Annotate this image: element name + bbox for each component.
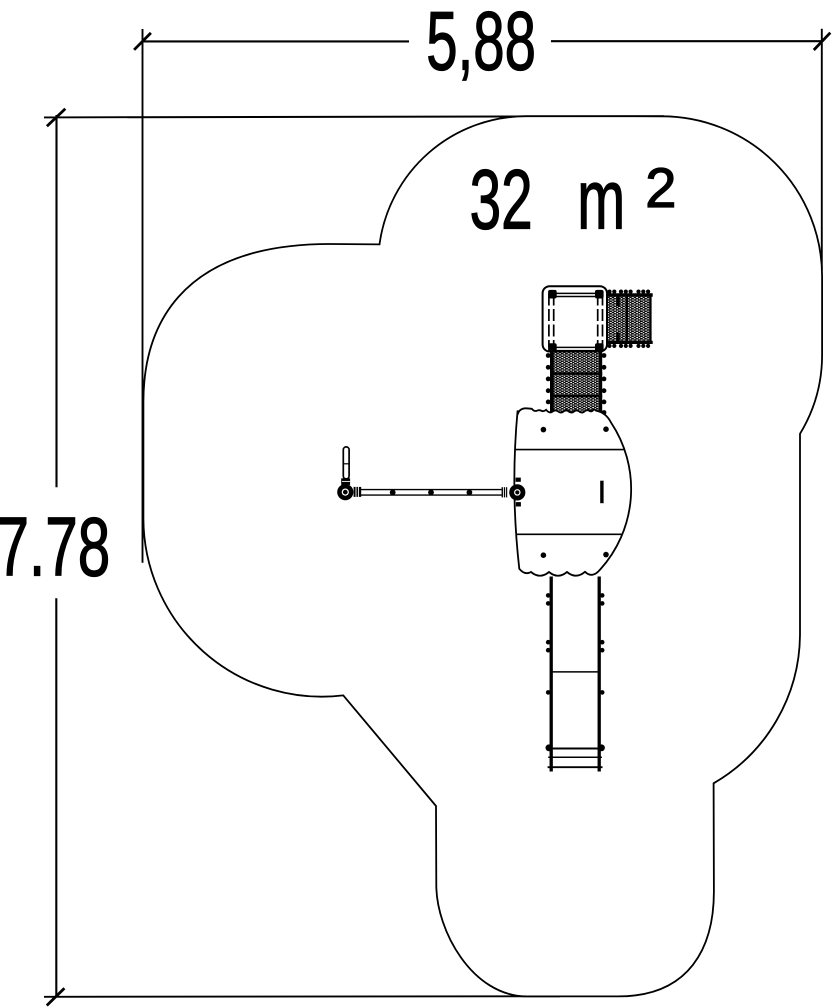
svg-text:2: 2 <box>645 156 676 219</box>
svg-text:m: m <box>577 154 625 247</box>
svg-text:32: 32 <box>470 154 533 248</box>
svg-text:5,88: 5,88 <box>426 0 536 88</box>
svg-text:7.78: 7.78 <box>0 501 110 594</box>
